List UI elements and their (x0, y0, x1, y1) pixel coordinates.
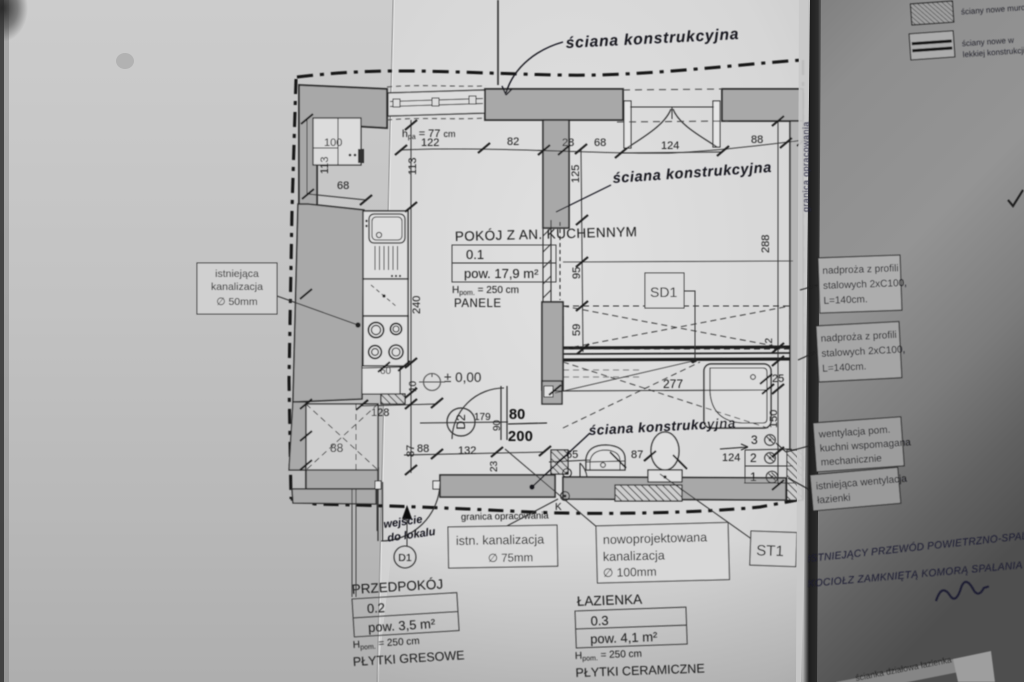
svg-text:100: 100 (324, 137, 342, 149)
svg-text:128: 128 (371, 407, 389, 419)
svg-text:K: K (555, 502, 562, 513)
svg-text:granica opracowania: granica opracowania (461, 510, 550, 523)
svg-text:granica opracowania: granica opracowania (801, 121, 811, 212)
svg-text:ŁAZIENKA: ŁAZIENKA (577, 592, 643, 609)
svg-text:pow. 17,9 m²: pow. 17,9 m² (464, 266, 539, 281)
svg-text:∅ 50mm: ∅ 50mm (216, 296, 257, 308)
svg-text:10: 10 (408, 380, 419, 392)
svg-text:68: 68 (594, 137, 606, 149)
svg-text:0.3: 0.3 (590, 613, 609, 629)
svg-text:L=140cm.: L=140cm. (823, 294, 868, 307)
svg-text:132: 132 (458, 445, 476, 457)
svg-text:1: 1 (750, 470, 757, 484)
svg-text:150: 150 (768, 410, 780, 428)
svg-text:124: 124 (722, 452, 740, 464)
svg-text:± 0,00: ± 0,00 (444, 370, 481, 385)
svg-text:65: 65 (566, 449, 578, 461)
svg-text:125: 125 (570, 165, 582, 183)
svg-text:87: 87 (631, 449, 643, 461)
svg-text:D1: D1 (398, 552, 412, 564)
svg-text:12: 12 (764, 337, 775, 349)
svg-text:68: 68 (337, 180, 349, 192)
svg-text:113: 113 (319, 156, 331, 174)
svg-text:59: 59 (571, 324, 583, 336)
svg-text:kanalizacja: kanalizacja (211, 281, 263, 293)
svg-text:0.1: 0.1 (466, 247, 484, 262)
svg-text:∅ 100mm: ∅ 100mm (603, 565, 657, 580)
svg-text:88: 88 (330, 441, 344, 455)
svg-text:113: 113 (407, 157, 419, 175)
svg-text:3: 3 (751, 433, 758, 447)
svg-text:124: 124 (661, 140, 679, 152)
svg-text:D2: D2 (454, 414, 468, 430)
svg-text:nowoprojektowana: nowoprojektowana (603, 530, 708, 547)
svg-text:28: 28 (562, 137, 574, 149)
svg-text:2: 2 (750, 451, 757, 465)
svg-text:23: 23 (489, 460, 500, 472)
svg-text:60: 60 (380, 366, 392, 377)
svg-text:L=140cm.: L=140cm. (822, 361, 867, 374)
svg-text:87: 87 (405, 445, 417, 457)
svg-text:200: 200 (508, 429, 533, 445)
svg-text:istniejąca: istniejąca (215, 268, 259, 280)
svg-text:pow. 4,1 m²: pow. 4,1 m² (590, 629, 658, 646)
svg-text:istn. kanalizacja: istn. kanalizacja (456, 532, 545, 548)
svg-text:277: 277 (663, 377, 683, 391)
svg-text:80: 80 (509, 407, 525, 423)
svg-text:288: 288 (760, 235, 772, 253)
svg-text:∅ 75mm: ∅ 75mm (488, 552, 533, 565)
svg-text:95: 95 (571, 267, 583, 279)
svg-text:90: 90 (492, 419, 503, 431)
svg-text:82: 82 (507, 136, 519, 148)
svg-text:PANELE: PANELE (454, 298, 502, 310)
svg-text:179: 179 (474, 412, 491, 423)
svg-text:240: 240 (411, 296, 423, 314)
svg-text:SD1: SD1 (650, 284, 677, 300)
svg-text:88: 88 (751, 134, 763, 146)
svg-text:0.2: 0.2 (366, 600, 385, 616)
svg-text:kanalizacja: kanalizacja (603, 548, 665, 564)
svg-text:ST1: ST1 (756, 542, 784, 560)
svg-text:25: 25 (772, 373, 784, 385)
svg-text:88: 88 (417, 443, 429, 455)
